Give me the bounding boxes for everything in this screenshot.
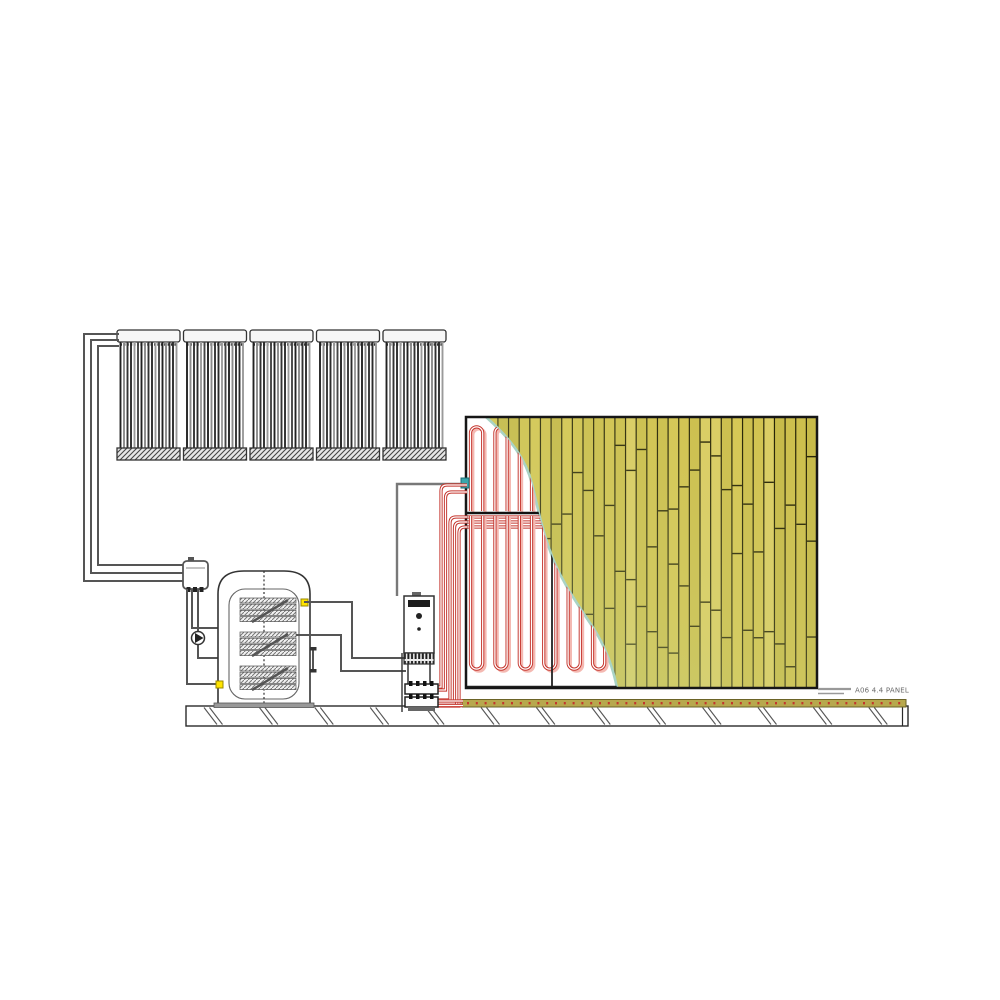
solar-collector-array bbox=[117, 330, 446, 460]
panel-label-text: A06 4.4 PANEL bbox=[855, 687, 909, 695]
wall-base-strip bbox=[462, 700, 906, 708]
buffer-tank bbox=[187, 571, 314, 708]
collector-panel bbox=[250, 330, 313, 460]
collector-panel bbox=[317, 330, 380, 460]
collector-panel bbox=[117, 330, 180, 460]
heating-circuit-pipes bbox=[437, 485, 467, 706]
collector-panel bbox=[383, 330, 446, 460]
heated-bamboo-wall bbox=[466, 417, 817, 688]
ground-line bbox=[186, 706, 908, 726]
collector-panel bbox=[184, 330, 247, 460]
solar-pump-station bbox=[183, 557, 208, 592]
heating-manifold bbox=[405, 681, 438, 711]
tank-connection-pipes bbox=[296, 602, 406, 673]
solar-wall-heating-diagram: A06 4.4 PANEL bbox=[0, 0, 1000, 1000]
panel-label: A06 4.4 PANEL bbox=[818, 687, 909, 695]
pump-icon bbox=[192, 632, 205, 645]
schematic-canvas: A06 4.4 PANEL bbox=[0, 0, 1000, 1000]
